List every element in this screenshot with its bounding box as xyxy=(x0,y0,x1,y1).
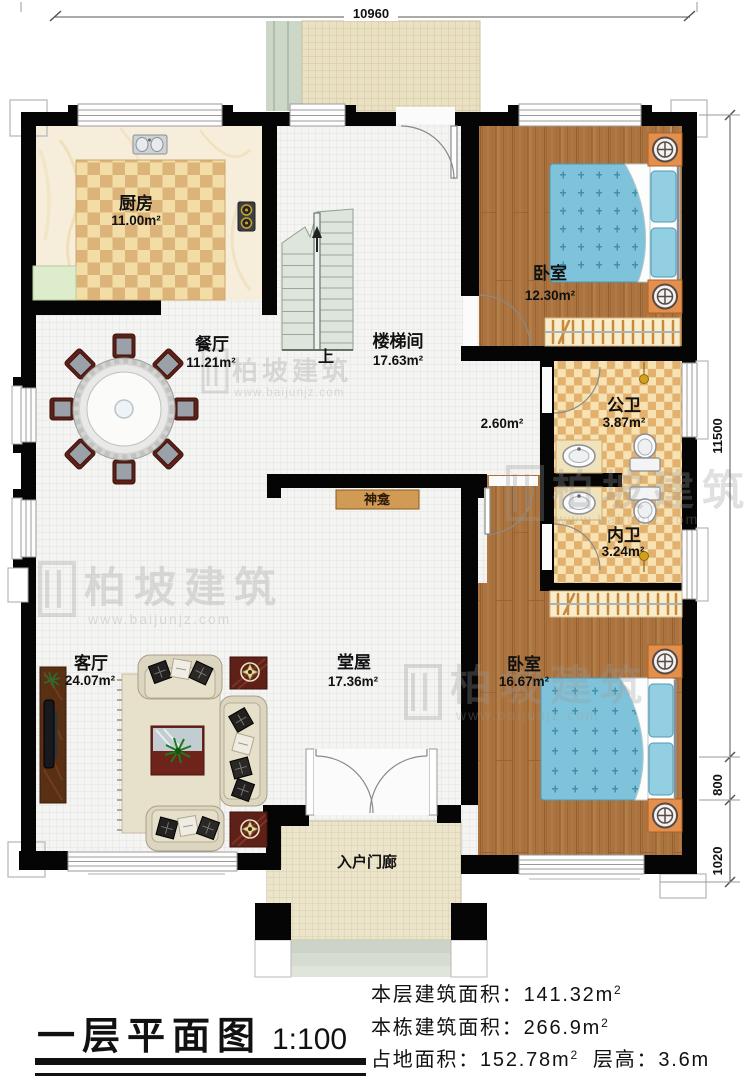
svg-text:12.30m²: 12.30m² xyxy=(525,288,576,303)
svg-text:堂屋: 堂屋 xyxy=(337,652,371,672)
svg-text:11.21m²: 11.21m² xyxy=(186,355,236,370)
svg-text:17.36m²: 17.36m² xyxy=(328,674,379,689)
svg-text:厨房: 厨房 xyxy=(119,193,153,213)
svg-text:上: 上 xyxy=(318,348,334,366)
svg-text:内卫: 内卫 xyxy=(607,525,641,545)
svg-text:3.87m²: 3.87m² xyxy=(603,415,646,430)
svg-text:柏坡建筑: 柏坡建筑 xyxy=(552,467,750,514)
svg-text:17.63m²: 17.63m² xyxy=(373,353,424,368)
svg-text:卧室: 卧室 xyxy=(533,263,567,283)
svg-text:16.67m²: 16.67m² xyxy=(499,674,550,689)
svg-text:餐厅: 餐厅 xyxy=(195,334,229,354)
svg-text:柏坡建筑: 柏坡建筑 xyxy=(84,564,284,611)
svg-text:www.baijunjz.com: www.baijunjz.com xyxy=(87,611,231,627)
svg-text:一层平面图: 一层平面图 xyxy=(37,1016,262,1058)
svg-text:3.24m²: 3.24m² xyxy=(602,544,645,559)
svg-text:本层建筑面积：141.32m2: 本层建筑面积：141.32m2 xyxy=(371,983,623,1006)
svg-text:11.00m²: 11.00m² xyxy=(111,213,161,228)
svg-text:800: 800 xyxy=(710,774,725,796)
svg-text:www.baijunjz.com: www.baijunjz.com xyxy=(455,707,599,723)
svg-text:卧室: 卧室 xyxy=(507,654,541,674)
svg-text:www.baijunjz.com: www.baijunjz.com xyxy=(555,511,699,527)
svg-text:神龛: 神龛 xyxy=(364,492,391,507)
svg-text:1020: 1020 xyxy=(710,847,725,876)
svg-text:1:100: 1:100 xyxy=(272,1023,347,1056)
svg-text:公卫: 公卫 xyxy=(607,396,641,415)
svg-text:10960: 10960 xyxy=(353,6,389,21)
svg-text:柏坡建筑: 柏坡建筑 xyxy=(450,662,650,709)
svg-text:本栋建筑面积：266.9m2: 本栋建筑面积：266.9m2 xyxy=(371,1016,610,1039)
svg-text:24.07m²: 24.07m² xyxy=(65,673,116,688)
svg-text:客厅: 客厅 xyxy=(73,653,108,673)
svg-text:入户门廊: 入户门廊 xyxy=(337,853,397,871)
svg-text:www.baijunjz.com: www.baijunjz.com xyxy=(233,387,345,399)
svg-text:占地面积：152.78m2层高：3.6m: 占地面积：152.78m2层高：3.6m xyxy=(371,1048,710,1071)
svg-text:11500: 11500 xyxy=(710,418,725,453)
svg-text:2.60m²: 2.60m² xyxy=(481,416,524,431)
svg-text:楼梯间: 楼梯间 xyxy=(373,331,424,351)
